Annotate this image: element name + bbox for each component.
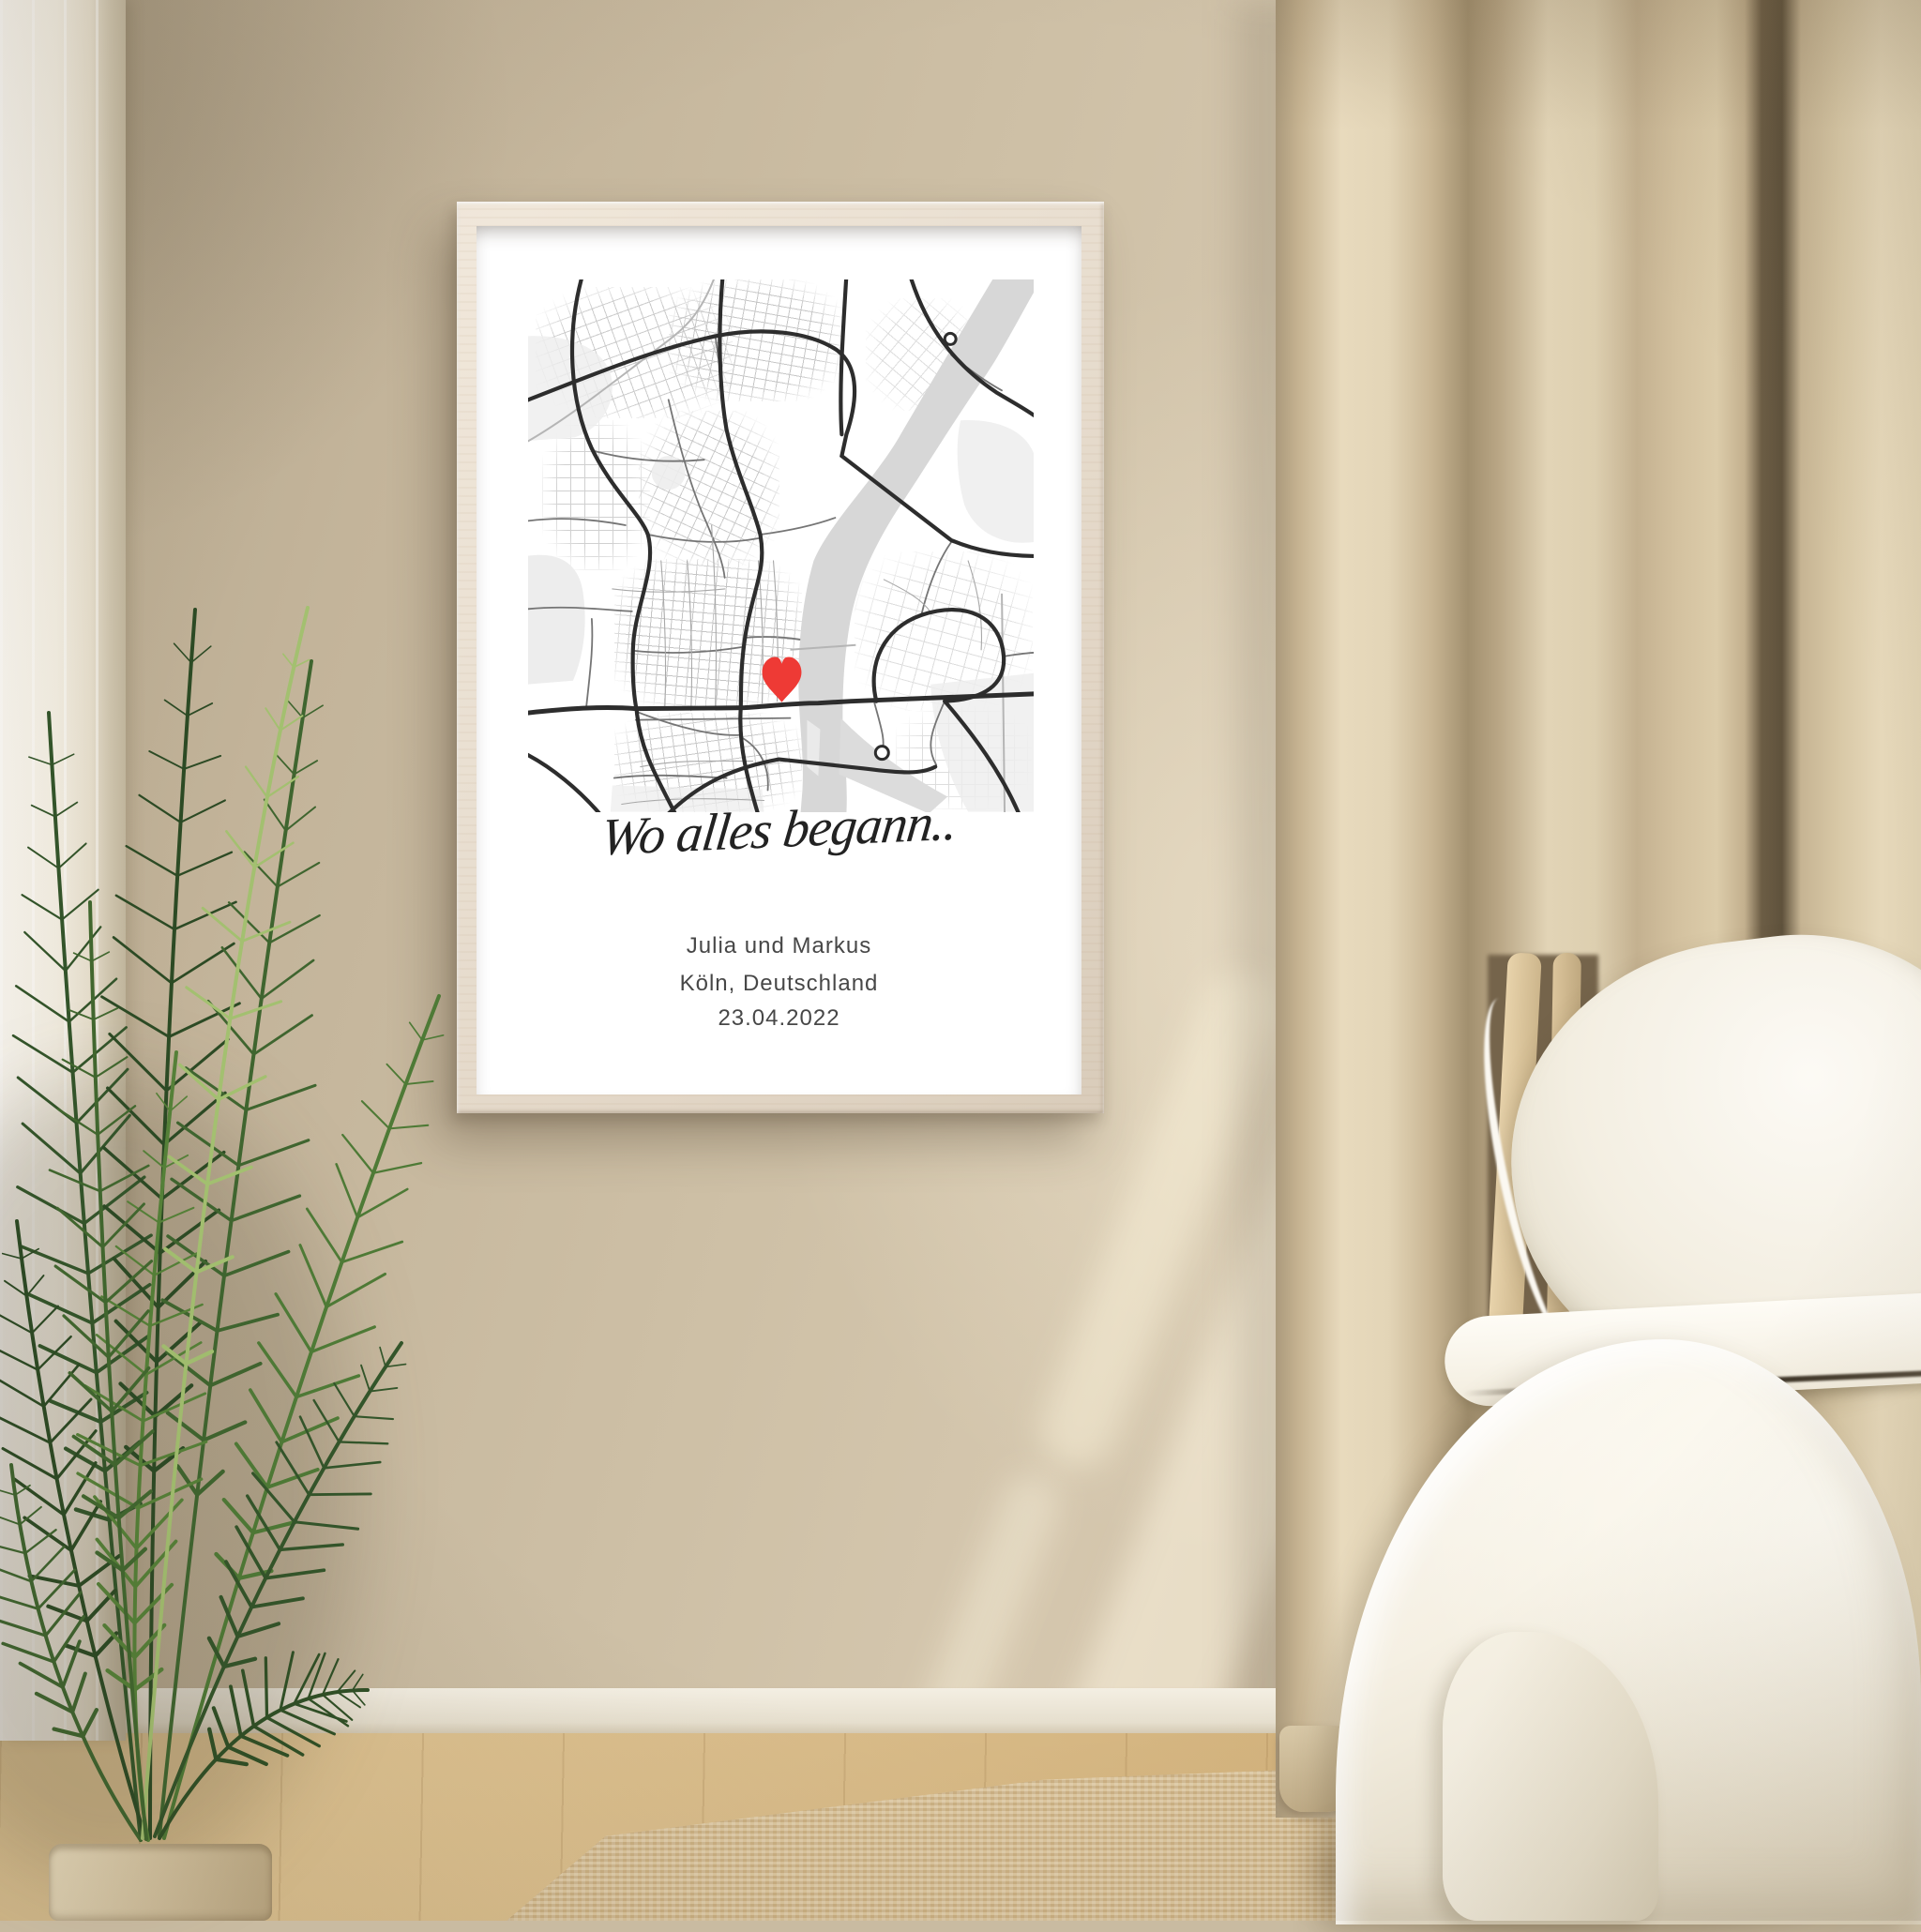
map-roads-svg — [528, 279, 1034, 812]
city-map — [528, 279, 1034, 812]
poster-date: 23.04.2022 — [476, 1005, 1082, 1032]
poster-location: Köln, Deutschland — [476, 971, 1082, 997]
poster-names: Julia und Markus — [476, 933, 1082, 959]
plant-pot — [49, 1844, 272, 1921]
poster-paper: Wo alles begann.. Julia und Markus Köln,… — [476, 226, 1082, 1094]
heart-icon — [763, 657, 802, 702]
potted-palm-plant — [0, 553, 488, 1921]
poster-frame: Wo alles begann.. Julia und Markus Köln,… — [457, 202, 1104, 1113]
